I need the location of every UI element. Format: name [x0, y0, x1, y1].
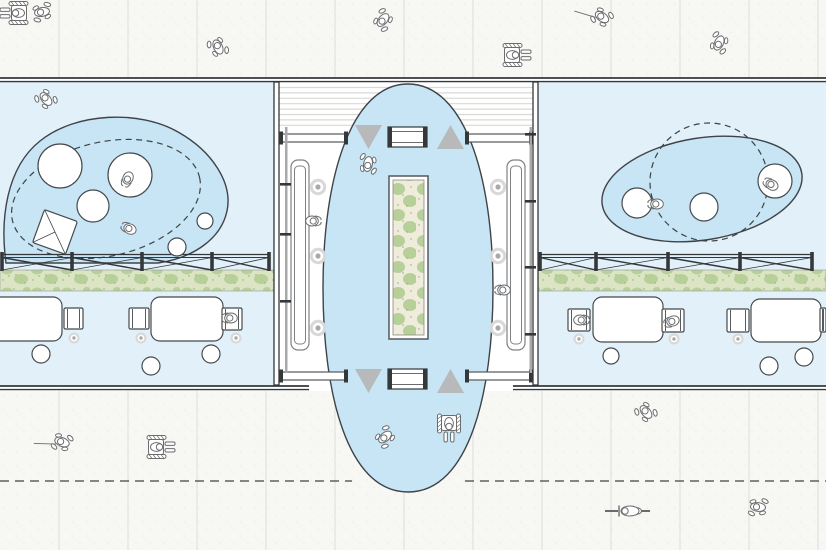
door-post — [423, 369, 427, 389]
threshold-bar — [466, 134, 532, 142]
threshold-bar — [466, 372, 532, 380]
wall-tick — [280, 233, 291, 236]
chair — [64, 308, 83, 329]
round-table — [168, 238, 186, 256]
stool — [795, 348, 813, 366]
chair — [820, 308, 826, 332]
green-strip — [538, 270, 826, 291]
site-plan-canvas — [0, 0, 826, 550]
floor-ring-dot — [315, 253, 320, 258]
fence-post — [70, 252, 74, 271]
threshold-cap — [465, 132, 469, 145]
table — [593, 297, 663, 342]
door-mat — [388, 127, 427, 147]
fence-post — [210, 252, 214, 271]
wall-tick — [525, 133, 536, 136]
door-post — [388, 127, 392, 147]
floor-ring-dot — [315, 325, 320, 330]
wall-tick — [280, 183, 291, 186]
floor-ring-small-dot — [672, 337, 675, 340]
wall-tick — [525, 200, 536, 203]
sidewalk-top — [0, 0, 826, 78]
stool — [603, 348, 619, 364]
floor-ring-small-dot — [139, 336, 142, 339]
stool — [202, 345, 220, 363]
round-table — [38, 144, 82, 188]
floor-ring-small-dot — [577, 337, 580, 340]
door-post — [423, 127, 427, 147]
table — [0, 297, 62, 341]
threshold-cap — [344, 132, 348, 145]
door-post — [388, 369, 392, 389]
stool — [760, 357, 778, 375]
threshold-cap — [344, 370, 348, 383]
round-table — [690, 193, 718, 221]
round-table — [197, 213, 213, 229]
chair — [129, 308, 149, 329]
floor-ring-small-dot — [72, 336, 75, 339]
round-table — [77, 190, 109, 222]
table — [151, 297, 223, 341]
fence-post — [538, 252, 542, 271]
bench — [507, 160, 525, 350]
wall-tick — [525, 333, 536, 336]
fence-post — [0, 252, 4, 271]
planter-bed — [393, 180, 424, 335]
green-strip — [0, 270, 274, 291]
threshold-bar — [280, 134, 347, 142]
fence-post — [140, 252, 144, 271]
fence-post — [594, 252, 598, 271]
site-plan — [0, 0, 826, 550]
stool — [32, 345, 50, 363]
stool — [142, 357, 160, 375]
fence-post — [666, 252, 670, 271]
wall-tick — [525, 266, 536, 269]
floor-ring-dot — [315, 184, 320, 189]
fence-post — [738, 252, 742, 271]
floor-ring-dot — [495, 184, 500, 189]
table — [751, 299, 821, 342]
floor-ring-dot — [495, 253, 500, 258]
floor-ring-small-dot — [234, 336, 237, 339]
fence-post — [267, 252, 271, 271]
door-mat — [388, 369, 427, 389]
wall-tick — [280, 300, 291, 303]
floor-ring-dot — [495, 325, 500, 330]
bench — [291, 160, 309, 350]
scene-root — [0, 0, 826, 550]
floor-ring-small-dot — [736, 337, 739, 340]
corridor-wall — [530, 127, 533, 373]
threshold-cap — [465, 370, 469, 383]
fence-post — [810, 252, 814, 271]
corridor-wall — [285, 127, 288, 373]
threshold-bar — [280, 372, 347, 380]
